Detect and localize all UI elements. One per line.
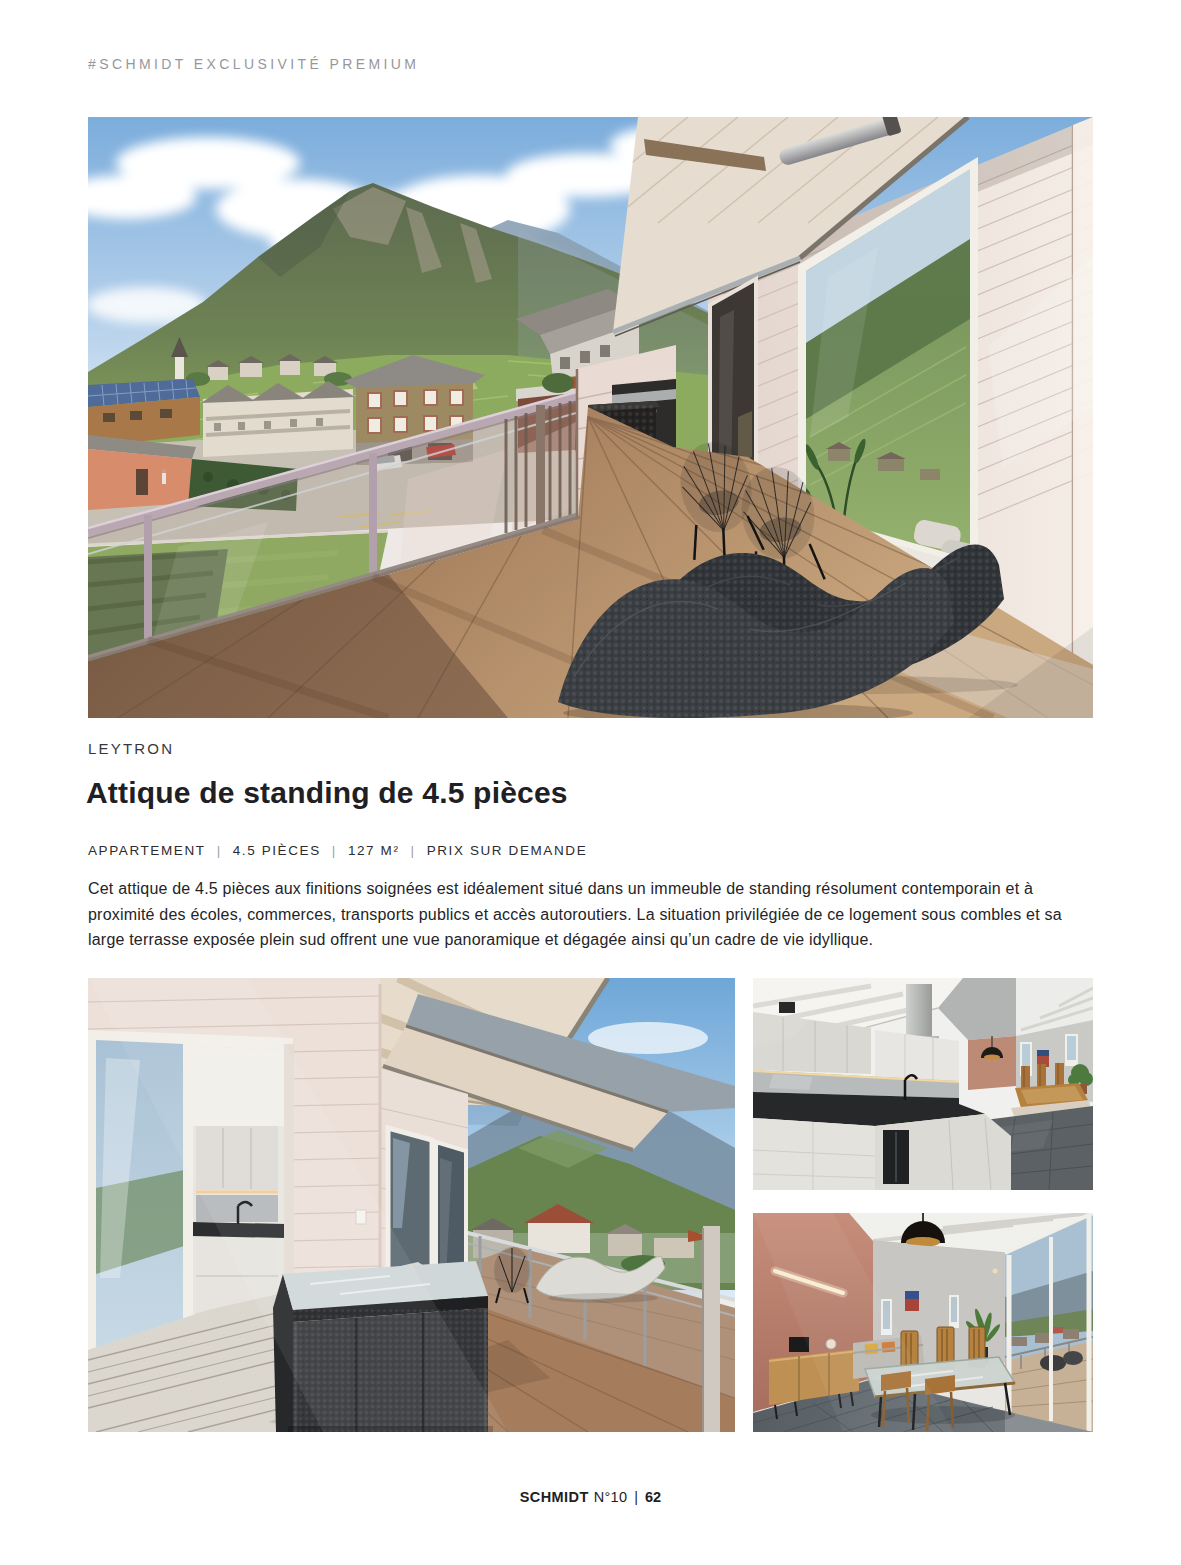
listing-title: Attique de standing de 4.5 pièces <box>86 776 568 810</box>
photo-kitchen <box>753 978 1093 1190</box>
photo-terrace-dining-corner <box>88 978 735 1432</box>
magazine-page: #SCHMIDT EXCLUSIVITÉ PREMIUM <box>0 0 1181 1565</box>
dining-room-illustration <box>753 1213 1093 1432</box>
listing-meta: APPARTEMENT|4.5 PIÈCES|127 M²|PRIX SUR D… <box>88 843 587 858</box>
footer-issue: N°10 <box>594 1489 628 1505</box>
hero-photo-terrace-panorama <box>88 117 1093 718</box>
location-label: LEYTRON <box>88 740 174 757</box>
terrace-panorama-illustration <box>88 117 1093 718</box>
meta-separator: | <box>217 843 222 858</box>
meta-item-rooms: 4.5 PIÈCES <box>233 843 321 858</box>
page-footer: SCHMIDTN°10|62 <box>0 1489 1181 1505</box>
meta-separator: | <box>411 843 416 858</box>
eyebrow-label: #SCHMIDT EXCLUSIVITÉ PREMIUM <box>88 56 419 72</box>
footer-separator: | <box>634 1489 638 1505</box>
kitchen-illustration <box>753 978 1093 1190</box>
listing-description: Cet attique de 4.5 pièces aux finitions … <box>88 876 1101 953</box>
terrace-corner-illustration <box>88 978 735 1432</box>
footer-brand: SCHMIDT <box>520 1489 589 1505</box>
footer-page-number: 62 <box>645 1489 661 1505</box>
meta-separator: | <box>332 843 337 858</box>
meta-item-price: PRIX SUR DEMANDE <box>427 843 588 858</box>
meta-item-surface: 127 M² <box>348 843 400 858</box>
photo-dining-room <box>753 1213 1093 1432</box>
meta-item-type: APPARTEMENT <box>88 843 206 858</box>
